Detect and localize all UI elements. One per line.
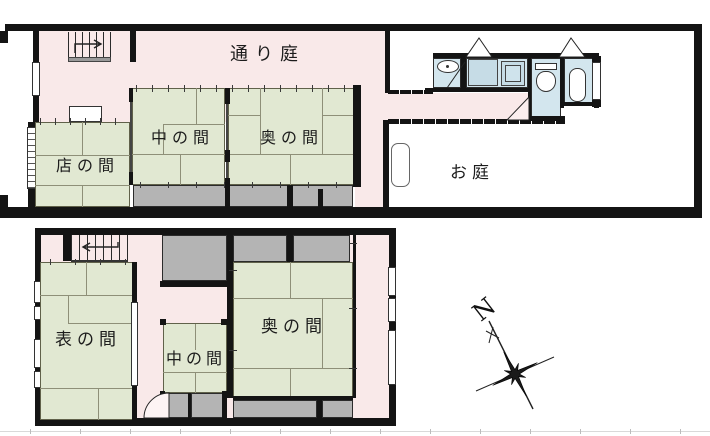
grid-tick	[530, 429, 531, 434]
floor2-middle-room-label: 中の間	[166, 350, 226, 368]
grid-tick	[80, 429, 81, 434]
floor-plan-sheet: 通り庭 店の間 中の間 奥の間 お庭	[0, 0, 710, 436]
grid-tick	[280, 429, 281, 434]
grid-tick	[230, 429, 231, 434]
shoji-ticks	[50, 259, 130, 265]
wall-tick	[349, 308, 357, 309]
grid-tick	[680, 429, 681, 434]
grid-tick	[330, 429, 331, 434]
compass-rose-icon: N	[440, 270, 610, 436]
wall-tick	[349, 243, 357, 244]
compass-north-label: N	[467, 292, 501, 327]
grid-tick	[430, 429, 431, 434]
grid-tick	[580, 429, 581, 434]
wall-tick	[229, 350, 237, 351]
grid-tick	[630, 429, 631, 434]
grid-tick	[180, 429, 181, 434]
front-room-label: 表の間	[55, 331, 121, 350]
floor2-back-room-label: 奥の間	[261, 318, 327, 337]
grid-tick	[30, 429, 31, 434]
spreadsheet-gridline	[0, 431, 710, 432]
grid-tick	[480, 429, 481, 434]
grid-tick	[130, 429, 131, 434]
grid-tick	[380, 429, 381, 434]
wall-tick	[349, 368, 357, 369]
wall-tick	[229, 270, 237, 271]
